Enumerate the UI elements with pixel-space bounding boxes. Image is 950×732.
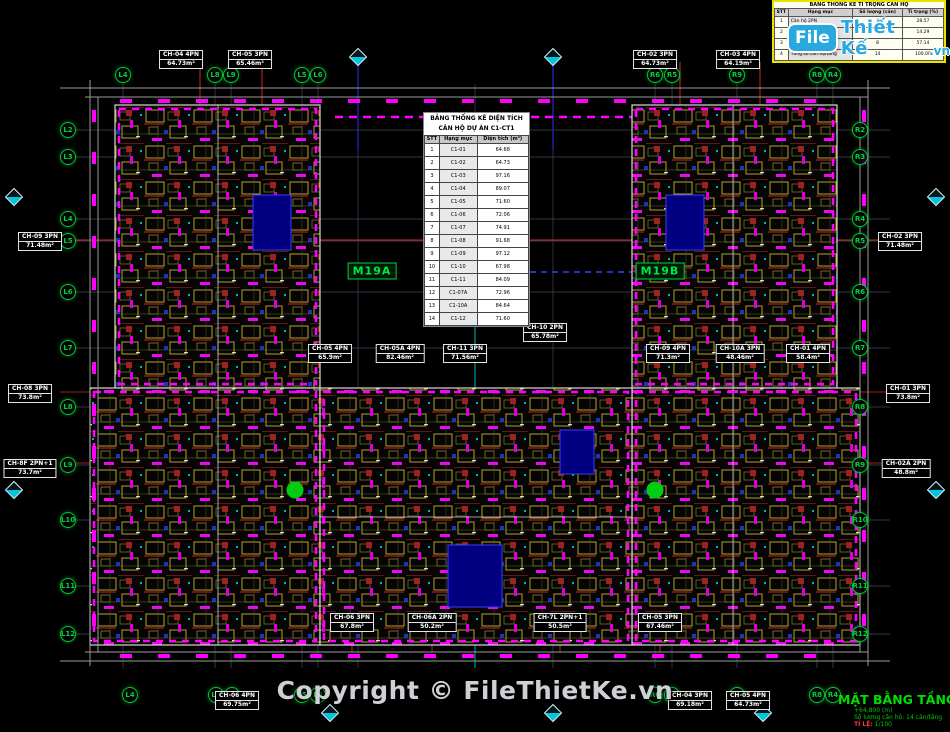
table-cell: 3	[425, 170, 440, 183]
table-row: 13C1-10A84.64	[425, 300, 529, 313]
grid-bubble-r4: R4	[852, 211, 868, 227]
unit-area: 64.73m²	[727, 701, 769, 709]
grid-bubble-r8: R8	[852, 399, 868, 415]
grid-bubble-l8: L8	[207, 67, 223, 83]
table-cell: 4	[775, 50, 789, 61]
unit-area: 71.56m²	[444, 354, 486, 362]
unit-area: 73.8m²	[887, 394, 929, 402]
unit-label: CH-06 4PN69.75m²	[215, 691, 259, 710]
table-row: 14C1-1271.60	[425, 313, 529, 326]
table-header-row: STTHạng mụcDiện tích (m²)	[425, 136, 529, 144]
table-cell: 97.12	[477, 248, 528, 261]
grid-bubble-l4: L4	[60, 211, 76, 227]
column-marker-dot	[287, 482, 304, 499]
grid-bubble-r6: R6	[647, 67, 663, 83]
table-row: 11C1-1184.09	[425, 274, 529, 287]
grid-bubble-l2: L2	[60, 122, 76, 138]
grid-bubble-r5: R5	[664, 67, 680, 83]
unit-area: 48.8m²	[883, 469, 930, 477]
table-cell: C1-12	[439, 313, 477, 326]
table-header-cell: STT	[425, 136, 440, 144]
table-cell: C1-11	[439, 274, 477, 287]
unit-label: CH-8F 2PN+173.7m²	[3, 459, 56, 478]
logo-file-badge: File	[789, 25, 836, 51]
grid-bubble-l3: L3	[60, 149, 76, 165]
grid-bubble-l4: L4	[115, 67, 131, 83]
grid-bubble-l4: L4	[122, 687, 138, 703]
table-cell: C1-01	[439, 144, 477, 157]
table-cell: 1	[425, 144, 440, 157]
table-row: 1C1-0164.68	[425, 144, 529, 157]
grid-bubble-l6: L6	[310, 67, 326, 83]
grid-bubble-l8: L8	[60, 399, 76, 415]
grid-bubble-r8: R8	[809, 67, 825, 83]
table-cell: C1-03	[439, 170, 477, 183]
grid-bubble-l5: L5	[294, 67, 310, 83]
table-cell: 64.73	[477, 157, 528, 170]
unit-label: CH-06A 2PN50.2m²	[408, 613, 457, 632]
table-cell: C1-07A	[439, 287, 477, 300]
table-cell: 2	[425, 157, 440, 170]
grid-bubble-l9: L9	[60, 457, 76, 473]
unit-area: 48.46m²	[717, 354, 764, 362]
unit-name: CH-05 3PN	[229, 51, 271, 60]
unit-label: CH-11 3PN71.56m²	[443, 344, 487, 363]
table-cell: 71.60	[477, 313, 528, 326]
unit-label: CH-03 4PN64.19m²	[716, 50, 760, 69]
unit-label: CH-09 3PN71.48m²	[18, 232, 62, 251]
grid-bubble-r2: R2	[852, 122, 868, 138]
table-cell: 71.60	[477, 196, 528, 209]
table-row: 6C1-0672.06	[425, 209, 529, 222]
area-table-title-line2: CĂN HỘ DỰ ÁN C1-CT1	[424, 123, 529, 133]
table-header-cell: Diện tích (m²)	[477, 136, 528, 144]
table-cell: 84.64	[477, 300, 528, 313]
unit-area: 67.8m²	[331, 623, 373, 631]
table-cell: 12	[425, 287, 440, 300]
unit-area: 64.73m²	[634, 60, 676, 68]
unit-area: 65.78m²	[524, 333, 566, 341]
unit-name: CH-02 3PN	[634, 51, 676, 60]
grid-bubble-r3: R3	[852, 149, 868, 165]
table-cell: 9	[425, 248, 440, 261]
table-cell: 5	[425, 196, 440, 209]
grid-bubble-r4: R4	[825, 67, 841, 83]
area-table-title-line1: BẢNG THỐNG KÊ DIỆN TÍCH	[424, 113, 529, 123]
module-label-m19b: M19B	[636, 263, 685, 280]
table-header-cell: Hạng mục	[788, 9, 852, 17]
unit-name: CH-01 3PN	[887, 385, 929, 394]
unit-label: CH-04 3PN69.18m²	[668, 691, 712, 710]
unit-name: CH-8F 2PN+1	[4, 460, 55, 469]
grid-bubble-l11: L11	[60, 578, 76, 594]
unit-label: CH-06 3PN67.8m²	[330, 613, 374, 632]
table-cell: C1-02	[439, 157, 477, 170]
table-header-cell: STT	[775, 9, 789, 17]
table-cell: 74.91	[477, 222, 528, 235]
unit-name: CH-04 3PN	[669, 692, 711, 701]
unit-label: CH-7L 2PN+150.5m²	[534, 613, 587, 632]
unit-name: CH-02A 2PN	[883, 460, 930, 469]
grid-bubble-l5: L5	[60, 233, 76, 249]
unit-name: CH-06 3PN	[331, 614, 373, 623]
table-cell: 4	[425, 183, 440, 196]
table-row: 3C1-0397.16	[425, 170, 529, 183]
unit-area: 64.73m²	[160, 60, 202, 68]
unit-name: CH-09 4PN	[647, 345, 689, 354]
unit-area: 50.2m²	[409, 623, 456, 631]
unit-label: CH-05 4PN64.73m²	[726, 691, 770, 710]
unit-label: CH-01 3PN73.8m²	[886, 384, 930, 403]
table-cell: C1-09	[439, 248, 477, 261]
table-cell: 7	[425, 222, 440, 235]
table-cell: 72.96	[477, 287, 528, 300]
table-row: 2C1-0264.73	[425, 157, 529, 170]
area-table-grid: STTHạng mụcDiện tích (m²)1C1-0164.682C1-…	[424, 135, 529, 326]
grid-bubble-r8: R8	[809, 687, 825, 703]
unit-name: CH-08 3PN	[9, 385, 51, 394]
unit-label: CH-05 3PN67.46m²	[638, 613, 682, 632]
unit-name: CH-06A 2PN	[409, 614, 456, 623]
grid-bubble-r9: R9	[852, 457, 868, 473]
unit-area: 65.9m²	[309, 354, 351, 362]
logo-thietke-text: Thiết Kế	[841, 17, 929, 59]
grid-bubble-r11: R11	[852, 578, 868, 594]
unit-name: CH-10A 3PN	[717, 345, 764, 354]
unit-label: CH-09 4PN71.3m²	[646, 344, 690, 363]
drawing-scale-line: TỈ LỆ: 1/100	[854, 721, 950, 728]
unit-label: CH-08 3PN73.8m²	[8, 384, 52, 403]
table-cell: 10	[425, 261, 440, 274]
unit-label: CH-05 3PN65.46m²	[228, 50, 272, 69]
table-cell: C1-08	[439, 235, 477, 248]
grid-bubble-l10: L10	[60, 512, 76, 528]
grid-bubble-l7: L7	[60, 340, 76, 356]
table-row: 10C1-1067.98	[425, 261, 529, 274]
unit-area: 71.48m²	[879, 242, 921, 250]
table-cell: C1-05	[439, 196, 477, 209]
unit-label: CH-02 3PN71.48m²	[878, 232, 922, 251]
unit-name: CH-7L 2PN+1	[535, 614, 586, 623]
unit-name: CH-05 3PN	[639, 614, 681, 623]
unit-label: CH-05 4PN65.9m²	[308, 344, 352, 363]
table-cell: 97.16	[477, 170, 528, 183]
grid-bubble-l9: L9	[223, 67, 239, 83]
drawing-scale-value: 1/100	[875, 721, 892, 728]
unit-area: 69.75m²	[216, 701, 258, 709]
grid-bubble-r6: R6	[852, 284, 868, 300]
unit-name: CH-05 4PN	[727, 692, 769, 701]
table-cell: C1-10	[439, 261, 477, 274]
grid-bubble-l6: L6	[60, 284, 76, 300]
table-row: 7C1-0774.91	[425, 222, 529, 235]
unit-name: CH-05 4PN	[309, 345, 351, 354]
drawing-elevation: +64,800 (m)	[854, 707, 950, 714]
unit-name: CH-10 2PN	[524, 324, 566, 333]
grid-bubble-r10: R10	[852, 512, 868, 528]
table-cell: 1	[775, 17, 789, 28]
unit-area: 71.3m²	[647, 354, 689, 362]
unit-label: CH-02A 2PN48.8m²	[882, 459, 931, 478]
table-cell: 67.98	[477, 261, 528, 274]
drawing-title-block: MẶT BẰNG TẦNG 19 +64,800 (m) Số lượng că…	[838, 692, 950, 728]
table-cell: 3	[775, 39, 789, 50]
area-statistics-table: BẢNG THỐNG KÊ DIỆN TÍCH CĂN HỘ DỰ ÁN C1-…	[423, 112, 530, 327]
unit-name: CH-04 4PN	[160, 51, 202, 60]
unit-label: CH-05A 4PN82.46m²	[376, 344, 425, 363]
unit-label: CH-10A 3PN48.46m²	[716, 344, 765, 363]
table-cell: 14	[425, 313, 440, 326]
unit-area: 58.4m²	[787, 354, 829, 362]
table-cell: C1-07	[439, 222, 477, 235]
table-header-row: STTHạng mụcSố lượng (căn)Tỉ trọng (%)	[775, 9, 944, 17]
unit-label: CH-02 3PN64.73m²	[633, 50, 677, 69]
table-cell: 84.09	[477, 274, 528, 287]
unit-area: 50.5m²	[535, 623, 586, 631]
table-header-cell: Tỉ trọng (%)	[902, 9, 943, 17]
grid-bubble-r5: R5	[852, 233, 868, 249]
logo-vn-text: .vn	[929, 44, 950, 58]
unit-name: CH-01 4PN	[787, 345, 829, 354]
table-header-cell: Hạng mục	[439, 136, 477, 144]
unit-name: CH-06 4PN	[216, 692, 258, 701]
table-cell: 91.68	[477, 235, 528, 248]
grid-bubble-l12: L12	[60, 626, 76, 642]
table-cell: 72.06	[477, 209, 528, 222]
filethietke-logo[interactable]: File Thiết Kế .vn	[789, 17, 950, 59]
table-cell: 13	[425, 300, 440, 313]
unit-name: CH-09 3PN	[19, 233, 61, 242]
column-marker-dot	[647, 482, 664, 499]
unit-name: CH-05A 4PN	[377, 345, 424, 354]
unit-area: 73.8m²	[9, 394, 51, 402]
table-row: 5C1-0571.60	[425, 196, 529, 209]
table-cell: 89.07	[477, 183, 528, 196]
table-cell: C1-04	[439, 183, 477, 196]
table-row: 9C1-0997.12	[425, 248, 529, 261]
unit-label: CH-04 4PN64.73m²	[159, 50, 203, 69]
module-label-m19a: M19A	[348, 263, 397, 280]
drawing-units-line: Số lượng căn hộ: 14 căn/tầng	[854, 714, 950, 721]
floorplan-graphic	[0, 0, 950, 732]
table-cell: C1-06	[439, 209, 477, 222]
unit-area: 71.48m²	[19, 242, 61, 250]
unit-area: 73.7m²	[4, 469, 55, 477]
grid-bubble-r7: R7	[852, 340, 868, 356]
table-row: 8C1-0891.68	[425, 235, 529, 248]
table-cell: 8	[425, 235, 440, 248]
grid-bubble-r9: R9	[729, 67, 745, 83]
table-cell: 11	[425, 274, 440, 287]
table-header-cell: Số lượng (căn)	[853, 9, 903, 17]
unit-area: 65.46m²	[229, 60, 271, 68]
table-cell: 2	[775, 28, 789, 39]
cad-floorplan-canvas: L4L8L9L5L6R6R5R9R8R4L4L8L9L5L6R6R5R9R8R4…	[0, 0, 950, 732]
drawing-scale-label: TỈ LỆ:	[854, 721, 873, 728]
grid-bubble-r12: R12	[852, 626, 868, 642]
table-cell: C1-10A	[439, 300, 477, 313]
drawing-title: MẶT BẰNG TẦNG 19	[838, 692, 950, 707]
table-cell: 64.68	[477, 144, 528, 157]
unit-area: 69.18m²	[669, 701, 711, 709]
unit-name: CH-03 4PN	[717, 51, 759, 60]
unit-name: CH-11 3PN	[444, 345, 486, 354]
table-row: 4C1-0489.07	[425, 183, 529, 196]
unit-area: 67.46m²	[639, 623, 681, 631]
table-row: 12C1-07A72.96	[425, 287, 529, 300]
copyright-watermark[interactable]: Copyright © FileThietKe.vn	[277, 676, 674, 705]
unit-area: 82.46m²	[377, 354, 424, 362]
table-cell: 6	[425, 209, 440, 222]
unit-label: CH-01 4PN58.4m²	[786, 344, 830, 363]
unit-area: 64.19m²	[717, 60, 759, 68]
unit-name: CH-02 3PN	[879, 233, 921, 242]
